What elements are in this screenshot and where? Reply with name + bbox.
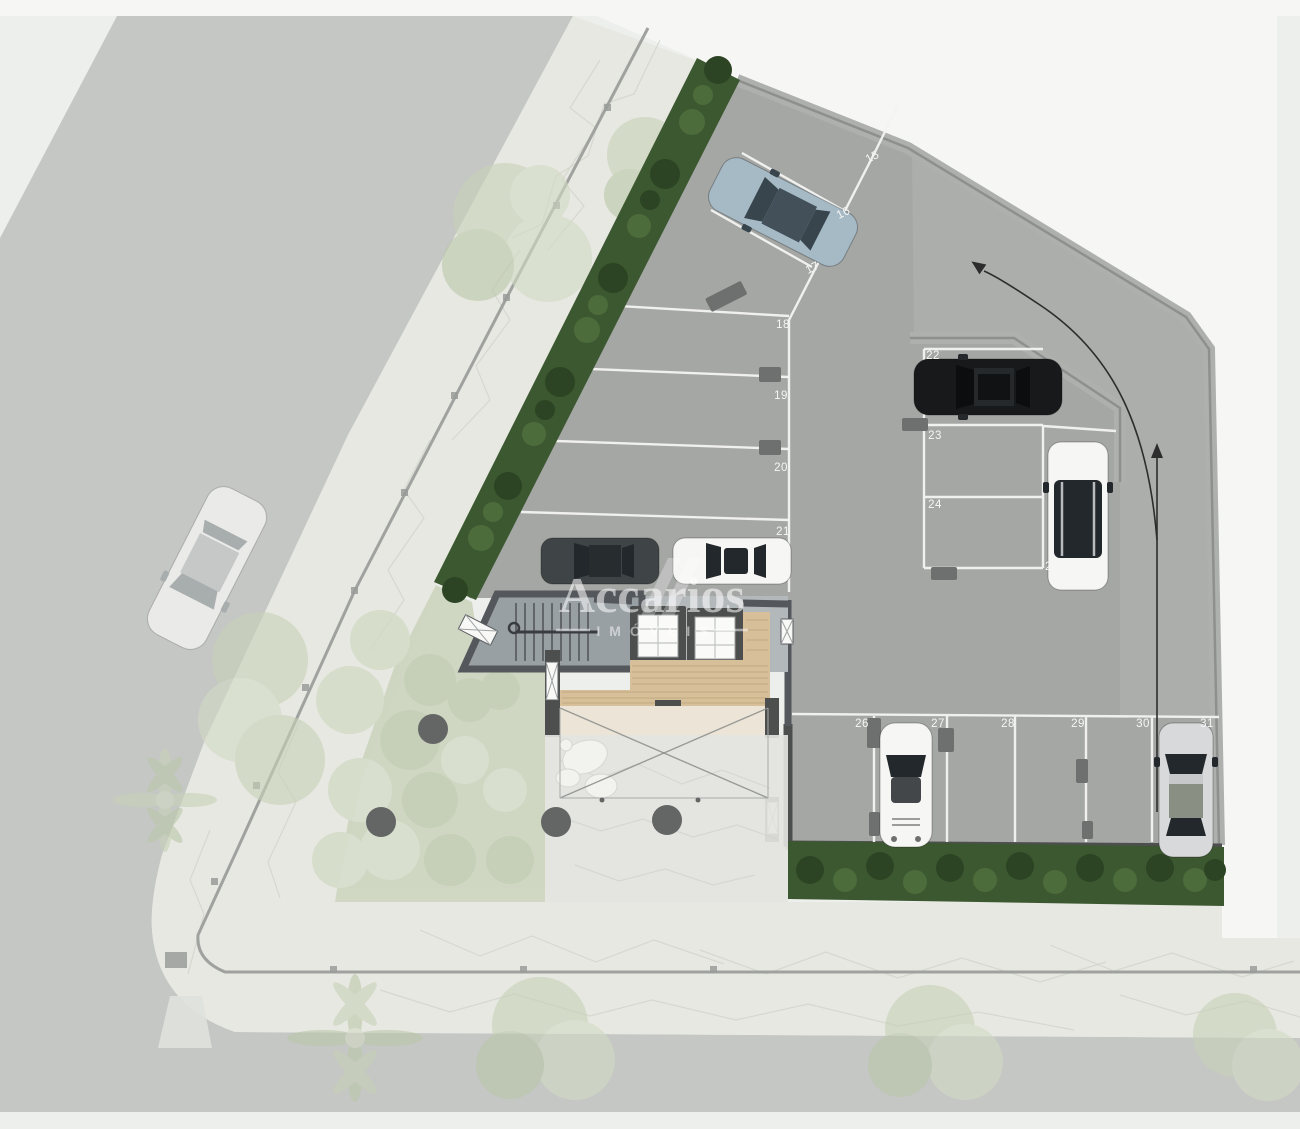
spot-label-26: 26 <box>855 718 869 730</box>
door-panel-left <box>546 662 558 700</box>
spot-label-20: 20 <box>774 462 788 474</box>
spot-label-29: 29 <box>1071 718 1085 730</box>
spot-label-25: 25 <box>1045 561 1059 573</box>
spot-label-22: 22 <box>926 350 940 362</box>
spot-label-31: 31 <box>1200 718 1214 730</box>
spot-label-21: 21 <box>776 526 790 538</box>
silver-hatchback <box>1154 723 1218 857</box>
spot-label-24: 24 <box>928 499 942 511</box>
site-plan-page: 15 16 17 18 19 20 21 22 23 24 25 26 27 2… <box>0 0 1300 1129</box>
white-sports-car <box>880 723 932 847</box>
door-panel-garage-wall <box>781 619 793 644</box>
spot-label-27: 27 <box>931 718 945 730</box>
top-margin <box>0 0 1300 16</box>
watermark-tagline: IMÓVEIS <box>596 622 717 639</box>
spot-label-19: 19 <box>774 390 788 402</box>
gate-marker <box>165 952 187 968</box>
black-sedan <box>914 354 1062 420</box>
spot-label-23: 23 <box>928 430 942 442</box>
spot-label-18: 18 <box>776 319 790 331</box>
spot-label-28: 28 <box>1001 718 1015 730</box>
watermark-brand: Accarios <box>559 567 745 623</box>
spot-label-30: 30 <box>1136 718 1150 730</box>
hedge-bottom <box>788 841 1226 906</box>
site-plan-canvas: 15 16 17 18 19 20 21 22 23 24 25 26 27 2… <box>0 0 1300 1129</box>
